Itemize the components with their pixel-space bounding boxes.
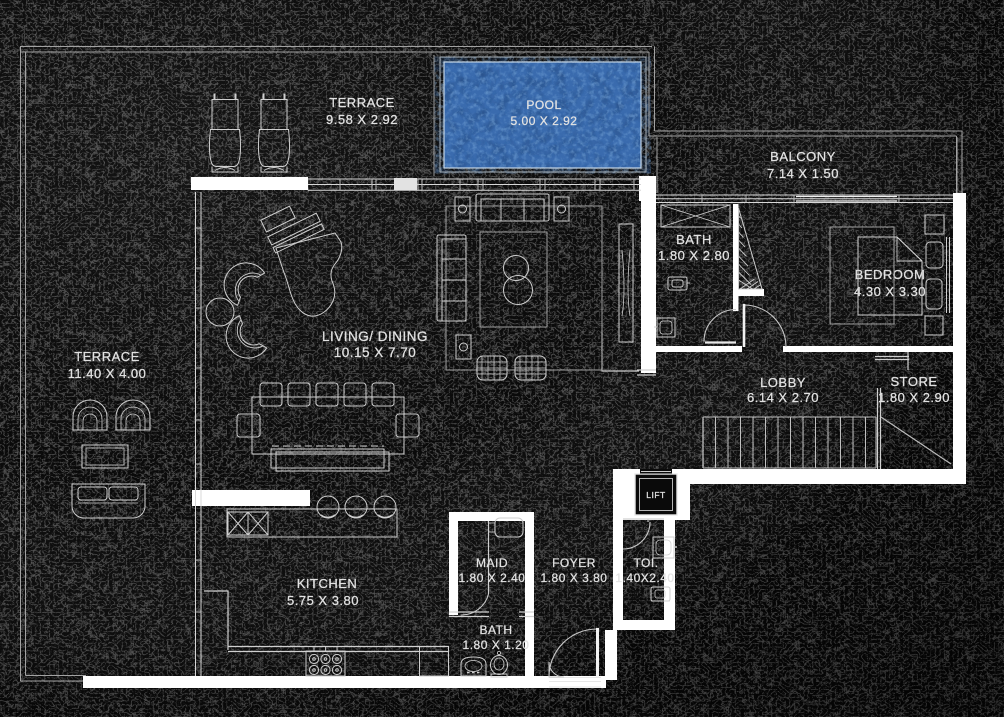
svg-text:5.75 X 3.80: 5.75 X 3.80: [287, 593, 359, 608]
svg-text:KITCHEN: KITCHEN: [297, 576, 358, 591]
svg-text:4.30 X 3.30: 4.30 X 3.30: [854, 284, 926, 299]
svg-text:LIVING/ DINING: LIVING/ DINING: [322, 329, 428, 344]
svg-text:9.58 X 2.92: 9.58 X 2.92: [326, 112, 398, 127]
svg-text:POOL: POOL: [526, 98, 561, 112]
svg-text:FOYER: FOYER: [552, 556, 596, 570]
svg-text:1.80 X 2.90: 1.80 X 2.90: [878, 390, 950, 405]
svg-text:1.80 X 1.20: 1.80 X 1.20: [463, 638, 530, 652]
svg-text:1.80 X 2.80: 1.80 X 2.80: [658, 248, 730, 263]
svg-text:5.00 X 2.92: 5.00 X 2.92: [511, 114, 578, 128]
svg-text:BEDROOM: BEDROOM: [855, 267, 926, 282]
svg-text:BATH: BATH: [676, 232, 712, 247]
svg-text:TERRACE: TERRACE: [329, 95, 395, 110]
svg-text:MAID: MAID: [476, 556, 508, 570]
svg-text:11.40 X 4.00: 11.40 X 4.00: [68, 366, 147, 381]
svg-text:BALCONY: BALCONY: [770, 149, 836, 164]
svg-text:BATH: BATH: [479, 623, 512, 637]
svg-text:1.40X2.40: 1.40X2.40: [615, 571, 674, 585]
svg-text:LOBBY: LOBBY: [760, 375, 806, 390]
svg-text:1.80 X 3.80: 1.80 X 3.80: [541, 571, 608, 585]
svg-text:6.14 X 2.70: 6.14 X 2.70: [747, 390, 819, 405]
svg-text:TERRACE: TERRACE: [74, 349, 140, 364]
svg-text:LIFT: LIFT: [646, 490, 665, 500]
svg-text:10.15 X 7.70: 10.15 X 7.70: [334, 345, 417, 360]
svg-text:STORE: STORE: [890, 374, 937, 389]
svg-text:1.80 X 2.40: 1.80 X 2.40: [459, 571, 526, 585]
svg-text:7.14 X 1.50: 7.14 X 1.50: [767, 166, 839, 181]
